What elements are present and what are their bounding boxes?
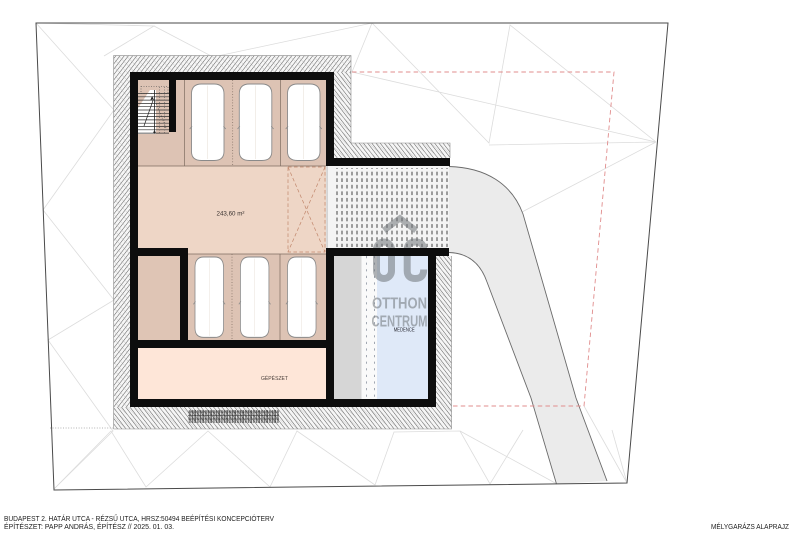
svg-text:MÉLYGARÁZS ALAPRAJZ: MÉLYGARÁZS ALAPRAJZ <box>711 522 790 531</box>
svg-text:BUDAPEST 2. HATÁR UTCA - RÉZSŰ: BUDAPEST 2. HATÁR UTCA - RÉZSŰ UTCA, HRS… <box>4 514 274 523</box>
svg-text:OTTHON: OTTHON <box>372 296 427 313</box>
svg-text:243,60 m²: 243,60 m² <box>217 212 245 218</box>
svg-text:MEDENCE: MEDENCE <box>394 328 416 334</box>
svg-text:ÉPÍTÉSZET: PAPP ANDRÁS, ÉPÍTÉS: ÉPÍTÉSZET: PAPP ANDRÁS, ÉPÍTÉSZ // 2025.… <box>4 522 174 531</box>
svg-text:GÉPÉSZET: GÉPÉSZET <box>261 375 289 382</box>
